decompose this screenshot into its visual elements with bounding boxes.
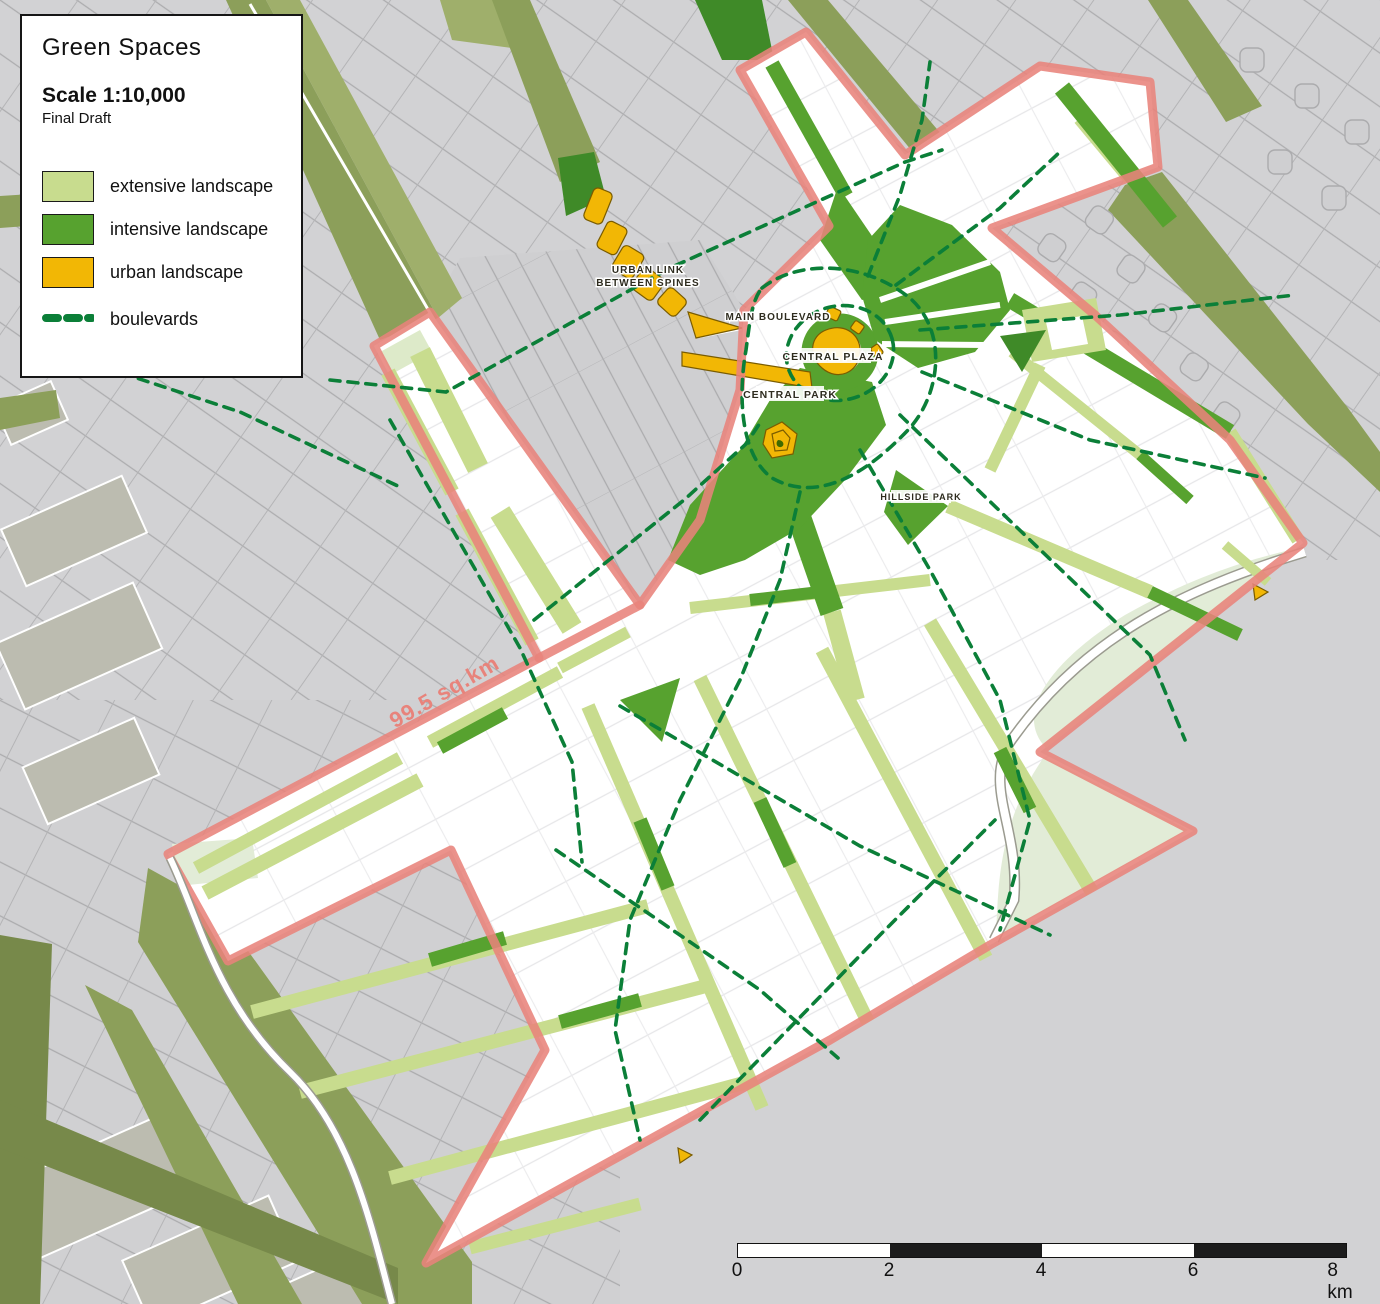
tick-8km: 8 km xyxy=(1327,1260,1352,1304)
map-page: URBAN LINK BETWEEN SPINES MAIN BOULEVARD… xyxy=(0,0,1380,1304)
legend-item-urban: urban landscape xyxy=(42,257,301,288)
tick-0: 0 xyxy=(732,1260,743,1282)
scale-segment xyxy=(738,1244,890,1257)
boulevards-label: boulevards xyxy=(110,309,198,330)
legend-item-intensive: intensive landscape xyxy=(42,214,301,245)
scale-segment xyxy=(1194,1244,1346,1257)
urban-link-label-line1: URBAN LINK xyxy=(612,265,684,276)
hillside-park-label: HILLSIDE PARK xyxy=(880,492,961,502)
intensive-swatch xyxy=(42,214,94,245)
tick-4: 4 xyxy=(1036,1260,1047,1282)
tick-6: 6 xyxy=(1188,1260,1199,1282)
scale-segment xyxy=(1042,1244,1194,1257)
urban-swatch xyxy=(42,257,94,288)
central-park-label: CENTRAL PARK xyxy=(743,389,837,401)
status-text: Final Draft xyxy=(42,110,301,127)
scale-text: Scale 1:10,000 xyxy=(42,84,301,108)
legend-item-extensive: extensive landscape xyxy=(42,171,301,202)
extensive-label: extensive landscape xyxy=(110,176,273,197)
extensive-swatch xyxy=(42,171,94,202)
legend-item-boulevards: boulevards xyxy=(42,304,301,335)
legend-items: extensive landscape intensive landscape … xyxy=(42,171,301,335)
scale-bar-segments xyxy=(737,1243,1347,1258)
intensive-label: intensive landscape xyxy=(110,219,268,240)
page-title: Green Spaces xyxy=(42,34,301,62)
legend-panel: Green Spaces Scale 1:10,000 Final Draft … xyxy=(20,14,303,378)
scale-segment xyxy=(890,1244,1042,1257)
boulevards-dash-icon xyxy=(42,311,94,329)
main-boulevard-label: MAIN BOULEVARD xyxy=(726,312,831,323)
central-plaza-label: CENTRAL PLAZA xyxy=(783,351,884,363)
urban-link-label-line2: BETWEEN SPINES xyxy=(596,278,699,289)
scale-bar-ticks: 0 2 4 6 8 km xyxy=(737,1260,1349,1284)
tick-2: 2 xyxy=(884,1260,895,1282)
urban-label: urban landscape xyxy=(110,262,243,283)
scale-bar: 0 2 4 6 8 km xyxy=(737,1243,1349,1284)
